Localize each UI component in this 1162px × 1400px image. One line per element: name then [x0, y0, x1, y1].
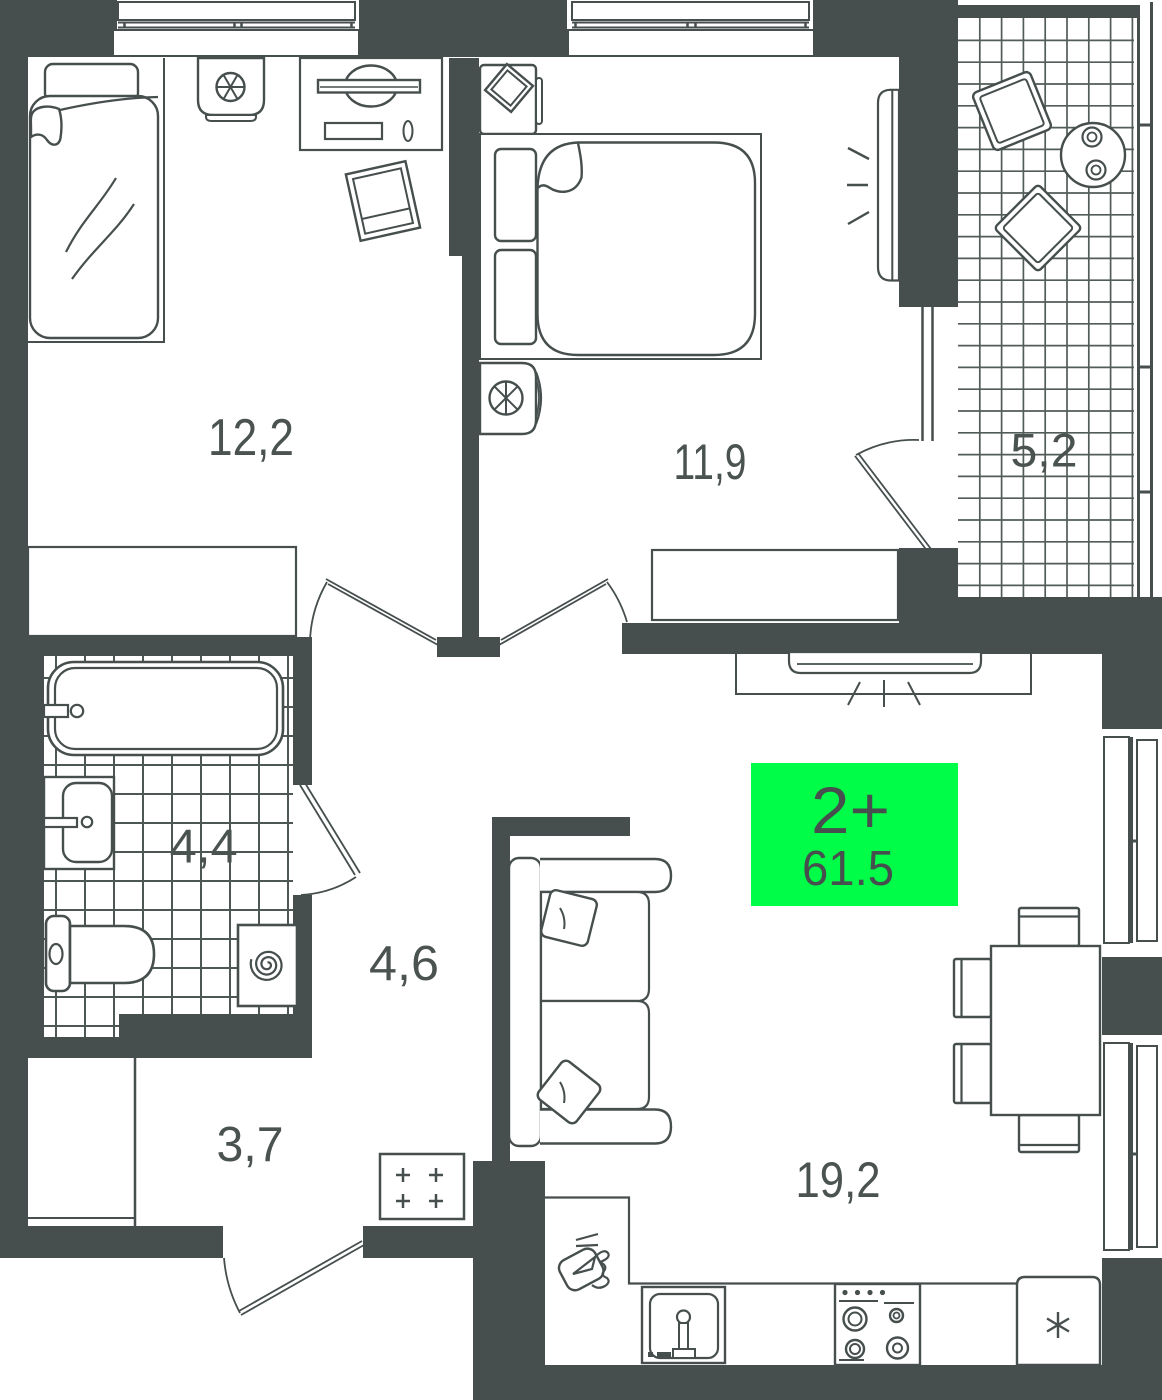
svg-text:19,2: 19,2	[796, 1152, 881, 1208]
svg-text:4,4: 4,4	[170, 820, 238, 873]
svg-text:2+: 2+	[811, 773, 890, 847]
svg-text:3,7: 3,7	[217, 1118, 284, 1172]
svg-text:11,9: 11,9	[674, 434, 747, 490]
svg-text:12,2: 12,2	[208, 409, 294, 467]
svg-text:5,2: 5,2	[1011, 424, 1078, 477]
svg-text:61.5: 61.5	[802, 842, 894, 896]
svg-text:4,6: 4,6	[369, 937, 439, 991]
